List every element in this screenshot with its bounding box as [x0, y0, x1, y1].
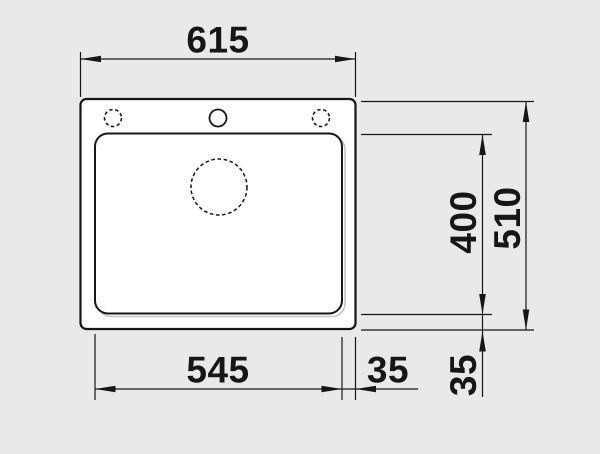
arrowhead [81, 56, 102, 63]
dim-bowl-bottom-offset: 35 [443, 315, 486, 398]
arrowhead [335, 56, 356, 63]
drawing-canvas: 615 510 400 545 [0, 0, 600, 454]
arrowhead [479, 294, 486, 315]
dim-overall-width-label: 615 [186, 20, 249, 61]
bowl-outline [95, 134, 342, 314]
dim-overall-width: 615 [81, 20, 356, 98]
dim-bowl-width-label: 545 [186, 350, 249, 391]
dim-bowl-depth: 400 [361, 135, 492, 315]
dim-bowl-bottom-offset-label: 35 [443, 354, 484, 396]
dim-bowl-right-offset-label: 35 [367, 350, 409, 391]
dim-overall-depth-label: 510 [487, 186, 528, 249]
arrowhead [95, 386, 116, 393]
arrowhead [523, 102, 530, 123]
dim-bowl-depth-label: 400 [443, 190, 484, 253]
arrowhead [479, 331, 486, 352]
sink-technical-drawing: 615 510 400 545 [0, 0, 600, 454]
arrowhead [479, 135, 486, 156]
dim-bowl-width: 545 35 [95, 334, 418, 400]
arrowhead [523, 310, 530, 331]
arrowhead [322, 386, 343, 393]
